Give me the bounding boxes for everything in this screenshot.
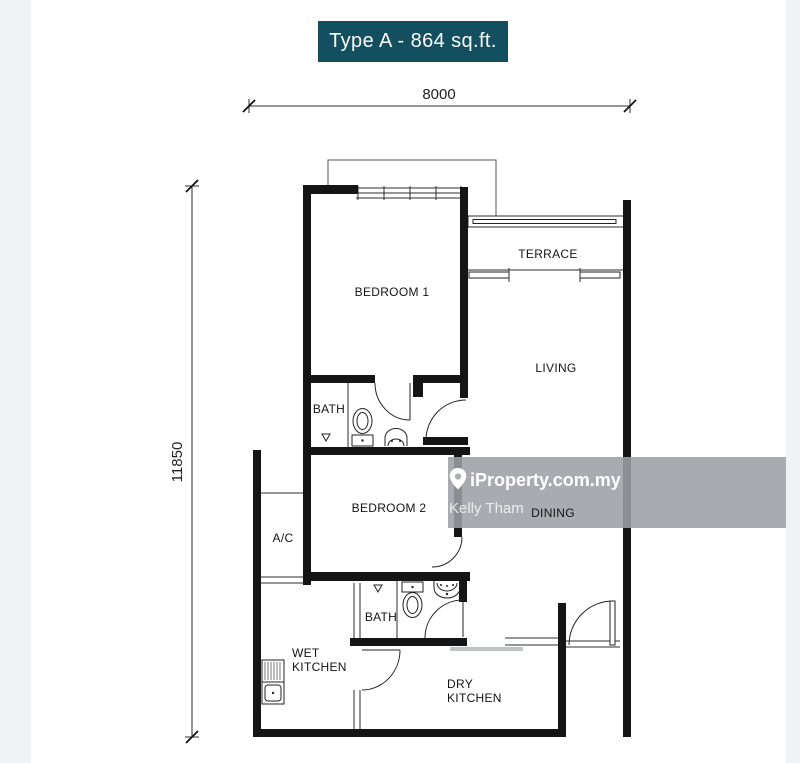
- room-label-terrace: TERRACE: [518, 247, 577, 261]
- room-label-wet-kitchen-line2: KITCHEN: [292, 660, 347, 674]
- kitchen-door-arc: [362, 650, 400, 690]
- watermark-band: [448, 457, 786, 528]
- bath1-toilet-icon: [352, 409, 373, 447]
- bath1-shower-drain-icon: [322, 434, 330, 441]
- terrace-sliding-door: [468, 268, 623, 282]
- room-label-bedroom-1: BEDROOM 1: [355, 285, 430, 299]
- floor-plan-page: Type A - 864 sq.ft. 8000 11850: [0, 0, 800, 763]
- height-dimension-label: 11850: [169, 442, 186, 483]
- watermark-brand: iProperty.com.my: [470, 470, 621, 490]
- bath1-door-arc: [375, 383, 410, 420]
- bath2-shower-drain-icon: [374, 585, 382, 592]
- floor-plan-drawing: 8000 11850: [0, 0, 800, 763]
- bedroom1-window: [356, 186, 462, 200]
- bath2-basin-icon: [434, 581, 460, 598]
- kitchen-sink-icon: [262, 660, 284, 704]
- room-label-bedroom-2: BEDROOM 2: [352, 501, 427, 515]
- partitions: [261, 383, 620, 729]
- bedroom2-door-arc: [432, 537, 462, 567]
- entrance-door-leaf: [610, 601, 615, 645]
- room-label-dry-kitchen-line2: KITCHEN: [447, 691, 502, 705]
- room-label-ac: A/C: [273, 531, 294, 545]
- bath2-door-arc: [425, 600, 463, 638]
- room-label-living: LIVING: [535, 361, 576, 375]
- room-label-dry-kitchen-line1: DRY: [447, 677, 473, 691]
- watermark-agent: Kelly Tham: [449, 500, 524, 517]
- terrace-railing: [468, 216, 623, 227]
- room-label-dining: DINING: [531, 506, 575, 520]
- entrance-door-arc: [569, 601, 613, 645]
- hallway-door-arc: [426, 400, 466, 440]
- room-label-bath-1: BATH: [313, 402, 345, 416]
- bath2-toilet-icon: [402, 582, 423, 618]
- room-label-bath-2: BATH: [365, 610, 397, 624]
- bath1-basin-icon: [385, 429, 407, 447]
- left-dimension: 11850: [169, 180, 199, 743]
- top-dimension: 8000: [243, 86, 636, 113]
- width-dimension-label: 8000: [422, 86, 455, 103]
- room-label-wet-kitchen-line1: WET: [292, 646, 320, 660]
- watermark: iProperty.com.my Kelly Tham: [448, 457, 786, 528]
